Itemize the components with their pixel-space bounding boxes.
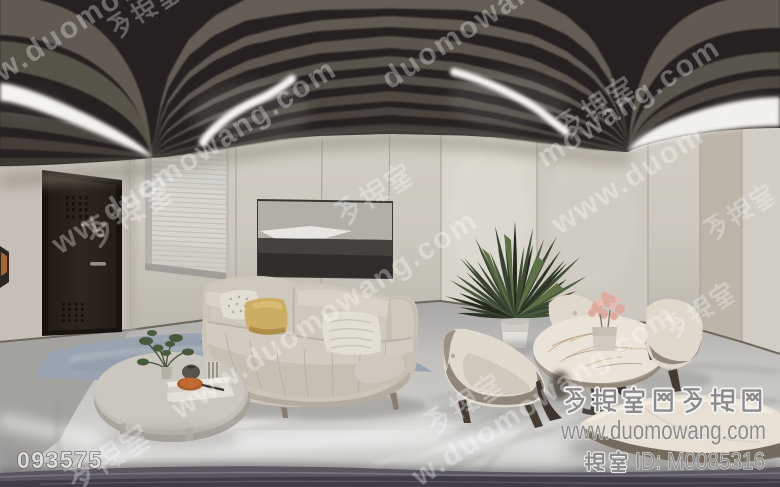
svg-text:093575: 093575: [17, 447, 103, 473]
svg-text:www.duomowang.com: www.duomowang.com: [560, 415, 766, 445]
svg-text:ID: M0085316: ID: M0085316: [635, 448, 765, 475]
